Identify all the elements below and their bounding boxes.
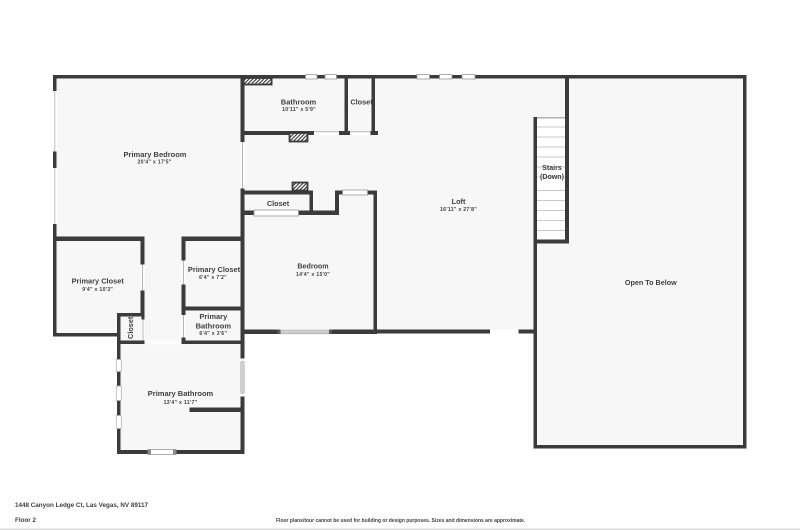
svg-text:Open To Below: Open To Below: [625, 278, 677, 287]
svg-text:20'4" x 17'5": 20'4" x 17'5": [137, 160, 171, 166]
svg-text:Closet: Closet: [267, 199, 290, 208]
svg-text:Primary Closet: Primary Closet: [188, 265, 241, 274]
svg-text:Primary Closet: Primary Closet: [72, 276, 125, 285]
svg-text:Stairs: Stairs: [542, 164, 562, 172]
svg-text:1448 Canyon Ledge Ct, Las Vega: 1448 Canyon Ledge Ct, Las Vegas, NV 8911…: [15, 502, 148, 509]
svg-text:Primary: Primary: [199, 312, 228, 321]
svg-text:Closet: Closet: [126, 316, 135, 339]
svg-text:10'11" x 5'9": 10'11" x 5'9": [282, 107, 316, 113]
svg-text:6'4" x 3'6": 6'4" x 3'6": [199, 331, 227, 337]
svg-text:16'11" x 27'8": 16'11" x 27'8": [440, 207, 477, 213]
svg-text:Bathroom: Bathroom: [196, 322, 232, 331]
svg-text:13'4" x 11'7": 13'4" x 11'7": [164, 400, 198, 406]
svg-text:(Down): (Down): [540, 173, 565, 181]
svg-text:14'4" x 15'0": 14'4" x 15'0": [296, 272, 330, 278]
svg-text:Bathroom: Bathroom: [281, 98, 317, 107]
svg-text:6'4" x 7'2": 6'4" x 7'2": [199, 275, 227, 281]
svg-text:Floor 2: Floor 2: [15, 517, 36, 524]
svg-text:Primary Bedroom: Primary Bedroom: [124, 150, 187, 159]
svg-text:Bedroom: Bedroom: [297, 263, 328, 271]
svg-text:Closet: Closet: [350, 98, 373, 107]
svg-text:Floor plans/tour cannot be use: Floor plans/tour cannot be used for buil…: [276, 518, 526, 524]
svg-text:Primary Bathroom: Primary Bathroom: [148, 389, 214, 398]
svg-text:Loft: Loft: [452, 197, 466, 206]
svg-text:9'4" x 10'3": 9'4" x 10'3": [82, 287, 113, 293]
